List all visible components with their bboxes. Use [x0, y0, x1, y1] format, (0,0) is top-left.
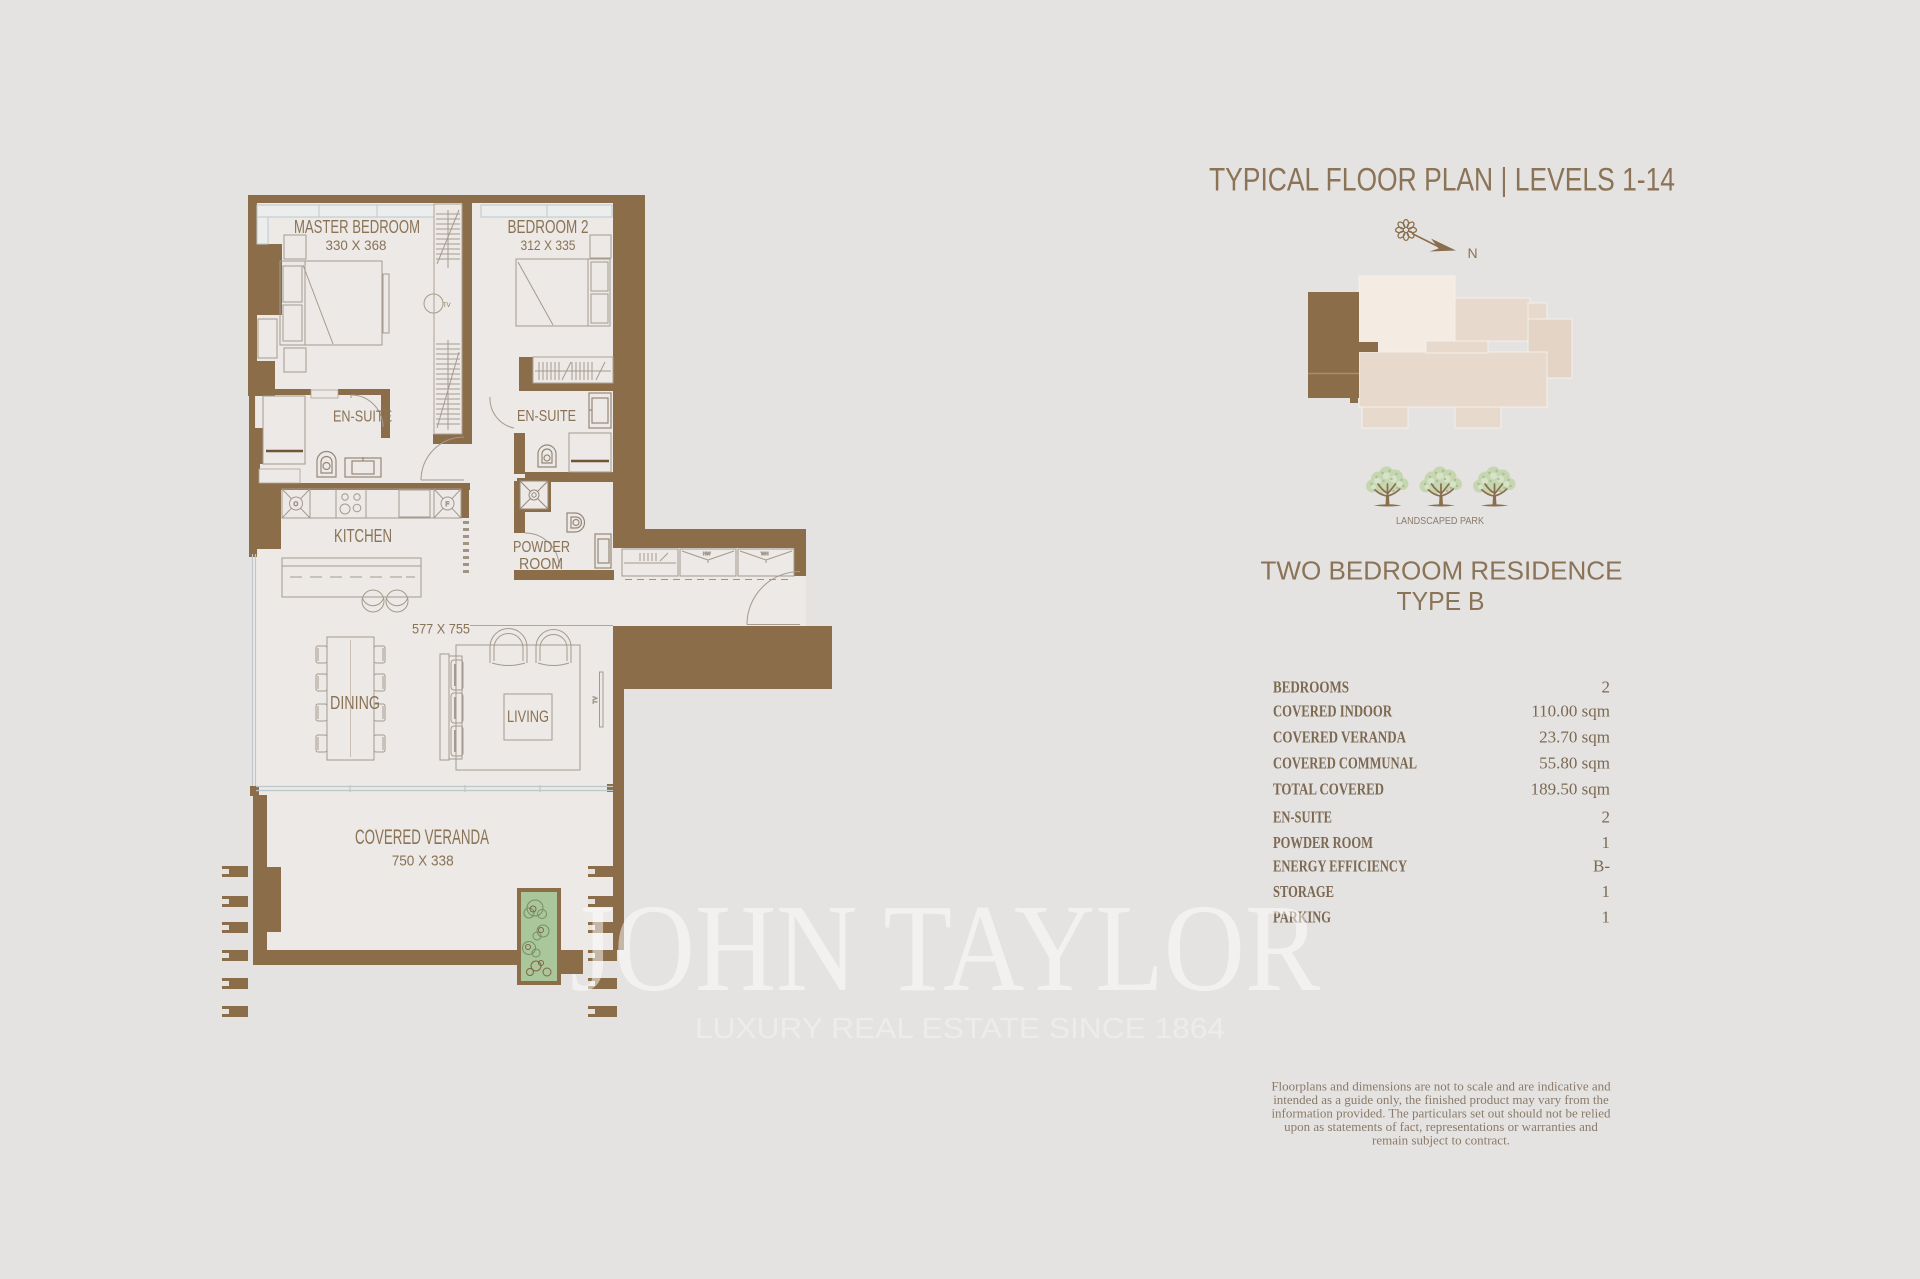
svg-text:MASTER BEDROOM: MASTER BEDROOM: [294, 216, 420, 237]
svg-text:POWDER ROOM: POWDER ROOM: [1273, 833, 1373, 852]
svg-text:DINING: DINING: [330, 692, 380, 713]
svg-text:POWDER: POWDER: [513, 539, 570, 556]
svg-text:ROOM: ROOM: [519, 556, 563, 573]
svg-text:1: 1: [1602, 833, 1611, 852]
svg-text:remain subject to contract.: remain subject to contract.: [1372, 1133, 1510, 1148]
svg-text:2: 2: [1602, 808, 1611, 827]
svg-text:110.00 sqm: 110.00 sqm: [1531, 702, 1610, 721]
svg-text:COVERED INDOOR: COVERED INDOOR: [1273, 702, 1393, 721]
svg-text:312 X 335: 312 X 335: [521, 237, 576, 253]
svg-text:COVERED VERANDA: COVERED VERANDA: [355, 826, 489, 849]
svg-text:ENERGY EFFICIENCY: ENERGY EFFICIENCY: [1273, 857, 1407, 876]
svg-text:189.50 sqm: 189.50 sqm: [1531, 780, 1610, 799]
svg-text:B-: B-: [1593, 857, 1610, 876]
svg-text:LUXURY REAL ESTATE SINCE 1864: LUXURY REAL ESTATE SINCE 1864: [695, 1013, 1225, 1045]
svg-text:JOHN TAYLOR: JOHN TAYLOR: [570, 880, 1321, 1018]
svg-text:COVERED COMMUNAL: COVERED COMMUNAL: [1273, 754, 1417, 773]
svg-text:TOTAL COVERED: TOTAL COVERED: [1273, 780, 1384, 799]
svg-text:1: 1: [1602, 908, 1611, 927]
svg-text:KITCHEN: KITCHEN: [334, 525, 392, 546]
svg-text:EN-SUITE: EN-SUITE: [517, 408, 576, 425]
svg-text:55.80 sqm: 55.80 sqm: [1539, 754, 1610, 773]
svg-text:COVERED VERANDA: COVERED VERANDA: [1273, 728, 1407, 747]
svg-text:TYPICAL FLOOR PLAN | LEVELS 1-: TYPICAL FLOOR PLAN | LEVELS 1-14: [1209, 162, 1675, 198]
svg-text:TYPE B: TYPE B: [1397, 586, 1485, 616]
svg-text:TV: TV: [443, 303, 451, 309]
svg-text:LIVING: LIVING: [507, 707, 549, 726]
svg-text:EN-SUITE: EN-SUITE: [333, 409, 392, 426]
svg-text:EN-SUITE: EN-SUITE: [1273, 808, 1332, 827]
svg-text:577 X 755: 577 X 755: [412, 621, 470, 637]
svg-text:O: O: [294, 502, 299, 508]
svg-text:2: 2: [1602, 678, 1611, 697]
svg-text:23.70 sqm: 23.70 sqm: [1539, 728, 1610, 747]
svg-text:HW: HW: [703, 551, 711, 556]
svg-text:WH: WH: [761, 551, 769, 556]
svg-text:BEDROOM 2: BEDROOM 2: [508, 216, 589, 237]
svg-text:LANDSCAPED PARK: LANDSCAPED PARK: [1396, 515, 1484, 527]
svg-text:330 X 368: 330 X 368: [326, 237, 387, 253]
svg-text:1: 1: [1602, 882, 1611, 901]
svg-text:F: F: [446, 502, 450, 508]
svg-text:N: N: [1468, 245, 1478, 261]
svg-text:TWO BEDROOM RESIDENCE: TWO BEDROOM RESIDENCE: [1261, 556, 1623, 586]
svg-text:BEDROOMS: BEDROOMS: [1273, 678, 1349, 697]
svg-text:750 X 338: 750 X 338: [392, 853, 454, 870]
svg-text:TV: TV: [593, 696, 599, 703]
